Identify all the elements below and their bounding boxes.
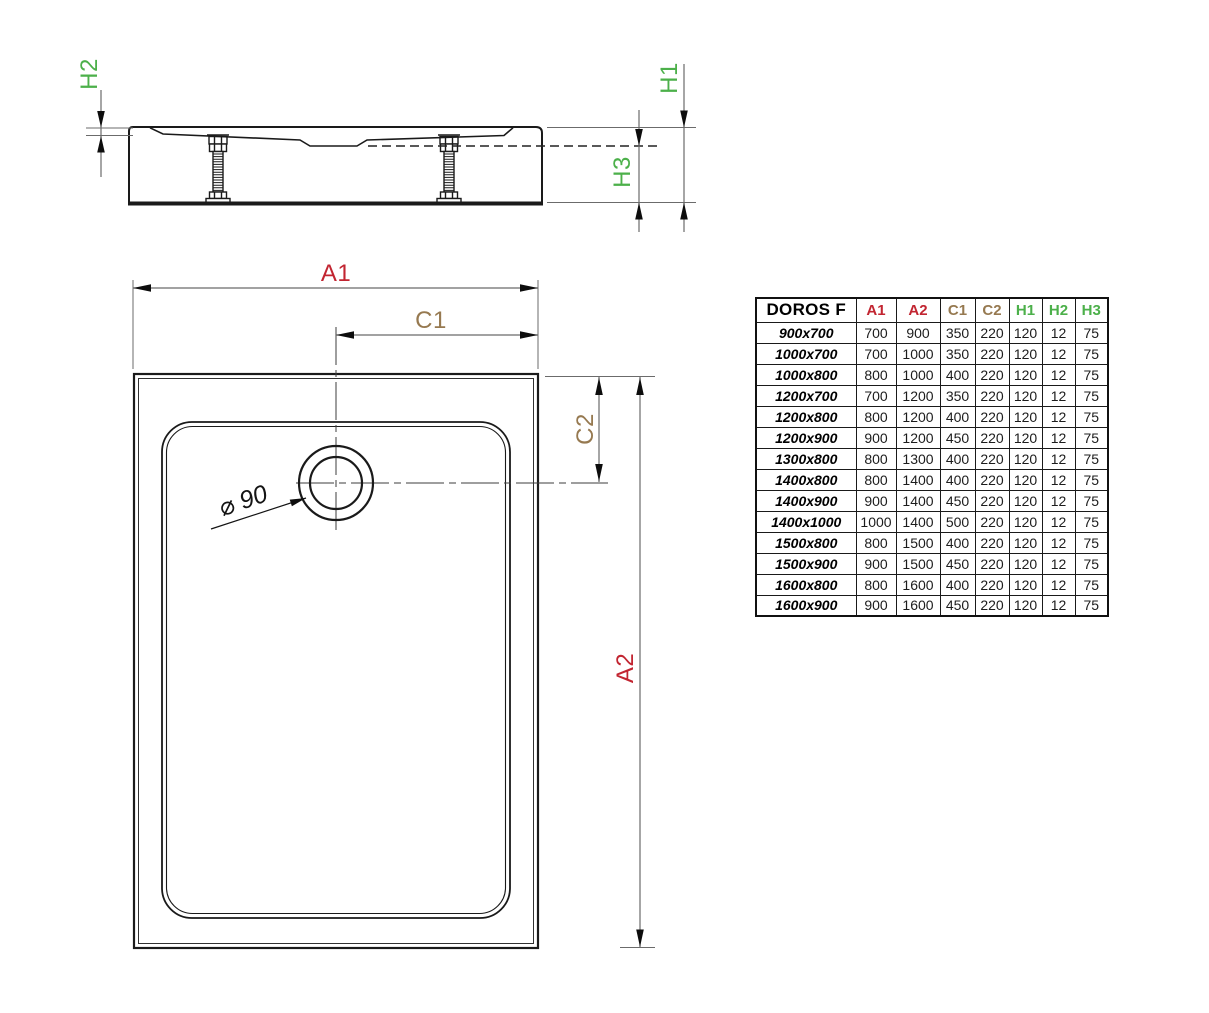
adjustable-foot (206, 135, 230, 204)
value-cell: 75 (1075, 364, 1108, 385)
value-cell: 220 (975, 343, 1009, 364)
value-cell: 1200 (896, 427, 940, 448)
column-header: H3 (1075, 298, 1108, 322)
size-cell: 1200x900 (756, 427, 856, 448)
value-cell: 75 (1075, 343, 1108, 364)
size-cell: 1200x700 (756, 385, 856, 406)
value-cell: 220 (975, 574, 1009, 595)
table-row: 1600x90090016004502201201275 (756, 595, 1108, 616)
value-cell: 220 (975, 427, 1009, 448)
value-cell: 1000 (896, 364, 940, 385)
column-header: H1 (1009, 298, 1042, 322)
value-cell: 1400 (896, 490, 940, 511)
value-cell: 400 (940, 574, 975, 595)
value-cell: 1200 (896, 406, 940, 427)
value-cell: 12 (1042, 385, 1075, 406)
value-cell: 120 (1009, 448, 1042, 469)
value-cell: 75 (1075, 532, 1108, 553)
table-row: 1500x80080015004002201201275 (756, 532, 1108, 553)
table-row: 1200x70070012003502201201275 (756, 385, 1108, 406)
column-header: A2 (896, 298, 940, 322)
value-cell: 1000 (856, 511, 896, 532)
value-cell: 120 (1009, 553, 1042, 574)
table-row: 1600x80080016004002201201275 (756, 574, 1108, 595)
drain-centerlines (296, 327, 608, 531)
value-cell: 800 (856, 448, 896, 469)
value-cell: 700 (856, 385, 896, 406)
value-cell: 120 (1009, 511, 1042, 532)
value-cell: 900 (856, 427, 896, 448)
value-cell: 12 (1042, 490, 1075, 511)
size-cell: 1600x800 (756, 574, 856, 595)
dimension-label-h1: H1 (658, 62, 682, 94)
value-cell: 12 (1042, 448, 1075, 469)
value-cell: 800 (856, 469, 896, 490)
size-cell: 1400x1000 (756, 511, 856, 532)
value-cell: 75 (1075, 406, 1108, 427)
value-cell: 1200 (896, 385, 940, 406)
value-cell: 120 (1009, 469, 1042, 490)
size-cell: 1200x800 (756, 406, 856, 427)
value-cell: 120 (1009, 364, 1042, 385)
table-row: 1500x90090015004502201201275 (756, 553, 1108, 574)
table-row: 1400x1000100014005002201201275 (756, 511, 1108, 532)
value-cell: 75 (1075, 427, 1108, 448)
value-cell: 220 (975, 448, 1009, 469)
size-cell: 900x700 (756, 322, 856, 343)
value-cell: 900 (896, 322, 940, 343)
value-cell: 75 (1075, 385, 1108, 406)
value-cell: 120 (1009, 532, 1042, 553)
value-cell: 220 (975, 595, 1009, 616)
value-cell: 120 (1009, 343, 1042, 364)
table-header-row: DOROS F A1 A2 C1 C2 H1 H2 H3 (756, 298, 1108, 322)
value-cell: 12 (1042, 595, 1075, 616)
value-cell: 12 (1042, 364, 1075, 385)
value-cell: 12 (1042, 427, 1075, 448)
table-row: 900x7007009003502201201275 (756, 322, 1108, 343)
spec-table: DOROS F A1 A2 C1 C2 H1 H2 H3 900x7007009… (755, 297, 1109, 617)
size-cell: 1600x900 (756, 595, 856, 616)
size-cell: 1500x900 (756, 553, 856, 574)
table-row: 1300x80080013004002201201275 (756, 448, 1108, 469)
value-cell: 75 (1075, 490, 1108, 511)
value-cell: 1500 (896, 532, 940, 553)
dimension-label-h2: H2 (78, 58, 102, 90)
value-cell: 350 (940, 322, 975, 343)
value-cell: 900 (856, 553, 896, 574)
value-cell: 12 (1042, 511, 1075, 532)
size-table-body: 900x70070090035022012012751000x700700100… (756, 322, 1108, 616)
value-cell: 1400 (896, 511, 940, 532)
value-cell: 12 (1042, 343, 1075, 364)
value-cell: 800 (856, 532, 896, 553)
value-cell: 450 (940, 490, 975, 511)
column-header: H2 (1042, 298, 1075, 322)
value-cell: 350 (940, 343, 975, 364)
value-cell: 120 (1009, 490, 1042, 511)
value-cell: 75 (1075, 574, 1108, 595)
value-cell: 12 (1042, 406, 1075, 427)
value-cell: 700 (856, 343, 896, 364)
value-cell: 500 (940, 511, 975, 532)
value-cell: 800 (856, 364, 896, 385)
value-cell: 220 (975, 385, 1009, 406)
value-cell: 75 (1075, 448, 1108, 469)
value-cell: 75 (1075, 511, 1108, 532)
value-cell: 220 (975, 406, 1009, 427)
dimension-label-c2: C2 (574, 413, 598, 445)
value-cell: 1300 (896, 448, 940, 469)
value-cell: 120 (1009, 385, 1042, 406)
dimension-label-c1: C1 (415, 309, 447, 333)
dimension-label-a2: A2 (614, 653, 638, 683)
value-cell: 1400 (896, 469, 940, 490)
value-cell: 350 (940, 385, 975, 406)
column-header: A1 (856, 298, 896, 322)
size-cell: 1000x800 (756, 364, 856, 385)
value-cell: 12 (1042, 322, 1075, 343)
value-cell: 450 (940, 595, 975, 616)
value-cell: 120 (1009, 595, 1042, 616)
value-cell: 900 (856, 490, 896, 511)
value-cell: 220 (975, 490, 1009, 511)
value-cell: 120 (1009, 322, 1042, 343)
value-cell: 800 (856, 574, 896, 595)
value-cell: 400 (940, 448, 975, 469)
value-cell: 220 (975, 532, 1009, 553)
value-cell: 900 (856, 595, 896, 616)
dimension-label-a1: A1 (321, 262, 351, 286)
tray-section-outline (129, 127, 542, 202)
value-cell: 75 (1075, 553, 1108, 574)
value-cell: 120 (1009, 427, 1042, 448)
value-cell: 220 (975, 469, 1009, 490)
table-row: 1000x70070010003502201201275 (756, 343, 1108, 364)
value-cell: 450 (940, 427, 975, 448)
value-cell: 1600 (896, 595, 940, 616)
value-cell: 220 (975, 322, 1009, 343)
table-row: 1000x80080010004002201201275 (756, 364, 1108, 385)
value-cell: 400 (940, 406, 975, 427)
value-cell: 120 (1009, 406, 1042, 427)
size-cell: 1500x800 (756, 532, 856, 553)
value-cell: 400 (940, 532, 975, 553)
value-cell: 220 (975, 511, 1009, 532)
value-cell: 75 (1075, 469, 1108, 490)
size-cell: 1400x800 (756, 469, 856, 490)
value-cell: 1500 (896, 553, 940, 574)
size-cell: 1300x800 (756, 448, 856, 469)
value-cell: 12 (1042, 469, 1075, 490)
value-cell: 120 (1009, 574, 1042, 595)
size-cell: 1400x900 (756, 490, 856, 511)
side-view-drawing (86, 64, 696, 232)
value-cell: 75 (1075, 322, 1108, 343)
dimension-h3 (635, 110, 643, 232)
value-cell: 220 (975, 364, 1009, 385)
dimension-h2 (86, 90, 133, 177)
value-cell: 1000 (896, 343, 940, 364)
value-cell: 450 (940, 553, 975, 574)
table-row: 1400x90090014004502201201275 (756, 490, 1108, 511)
value-cell: 75 (1075, 595, 1108, 616)
value-cell: 400 (940, 469, 975, 490)
value-cell: 1600 (896, 574, 940, 595)
value-cell: 12 (1042, 574, 1075, 595)
table-row: 1200x80080012004002201201275 (756, 406, 1108, 427)
value-cell: 220 (975, 553, 1009, 574)
table-title: DOROS F (756, 298, 856, 322)
value-cell: 12 (1042, 532, 1075, 553)
top-view-drawing (133, 280, 655, 948)
size-cell: 1000x700 (756, 343, 856, 364)
table-row: 1200x90090012004502201201275 (756, 427, 1108, 448)
dimension-label-h3: H3 (611, 156, 635, 188)
table-row: 1400x80080014004002201201275 (756, 469, 1108, 490)
value-cell: 12 (1042, 553, 1075, 574)
column-header: C2 (975, 298, 1009, 322)
value-cell: 700 (856, 322, 896, 343)
column-header: C1 (940, 298, 975, 322)
technical-drawing-page: H2 H1 H3 A1 C1 C2 A2 ⌀ 90 DOROS F A1 A2 … (0, 0, 1209, 1013)
value-cell: 400 (940, 364, 975, 385)
value-cell: 800 (856, 406, 896, 427)
